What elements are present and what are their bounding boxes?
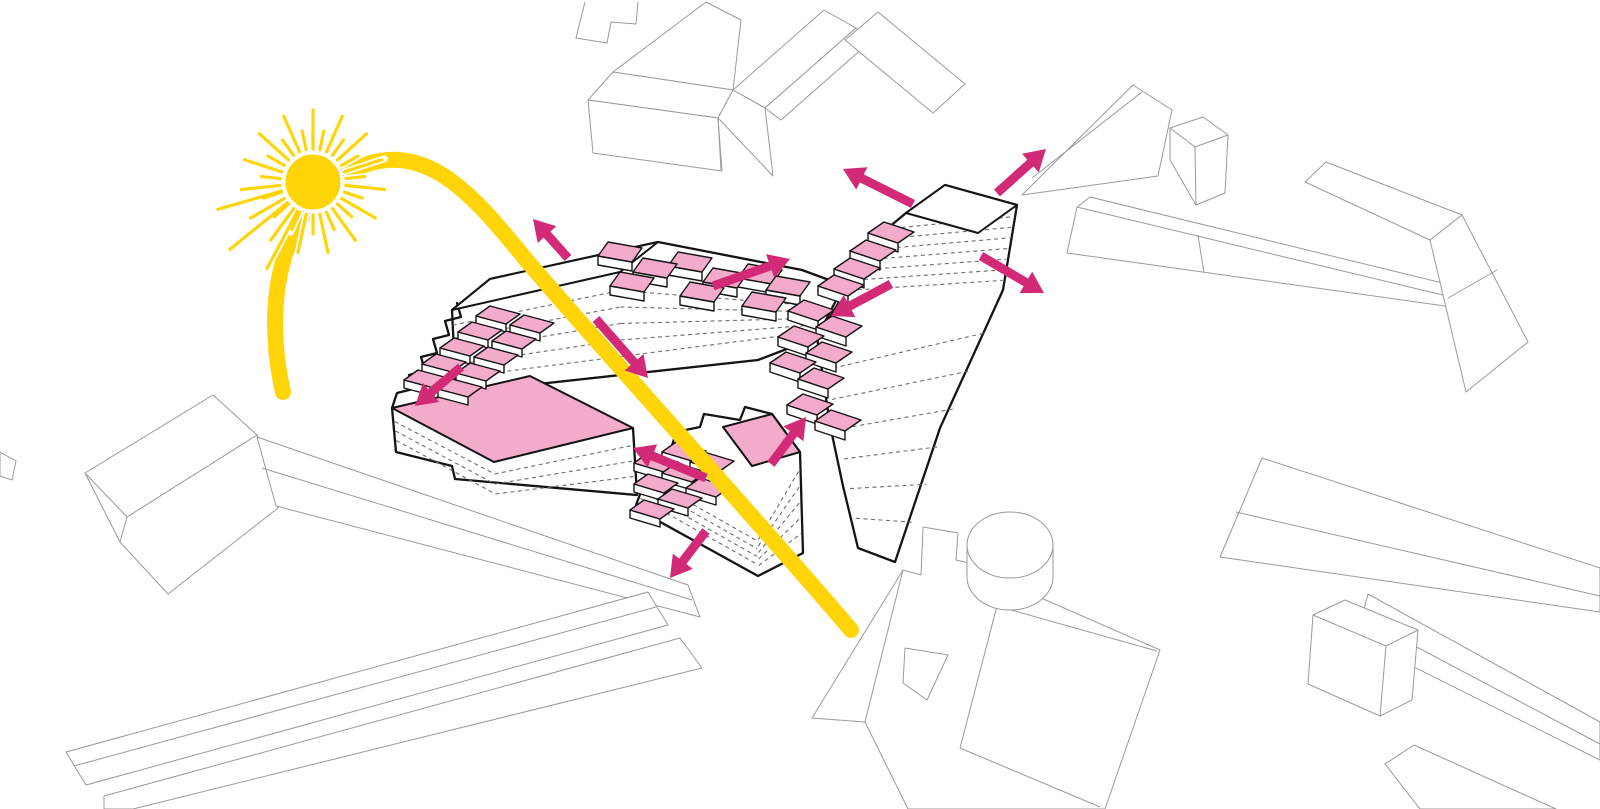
context-block-nw-zigzag xyxy=(576,2,638,43)
context-box-sw xyxy=(85,395,278,594)
context-sliver-west xyxy=(0,452,16,480)
context-cube-ne xyxy=(1170,117,1228,205)
context-bars-se-long-upper xyxy=(1220,458,1600,612)
sun-disc xyxy=(284,153,342,211)
context-block-se-partial xyxy=(1385,745,1556,809)
arrow-view-slab-nw xyxy=(533,219,568,258)
context-block-north-bar-east xyxy=(845,12,965,113)
massing-diagram xyxy=(0,0,1600,809)
context-cylinder-tank xyxy=(967,512,1053,610)
context-bar-far-east-wing xyxy=(1305,162,1462,240)
diagram-canvas xyxy=(0,0,1600,809)
context-bar-far-east-leg xyxy=(1430,215,1528,392)
sun-icon xyxy=(215,107,388,271)
context-bar-ne-diagonal xyxy=(1022,85,1172,195)
arrow-view-tower-nw xyxy=(843,167,913,204)
